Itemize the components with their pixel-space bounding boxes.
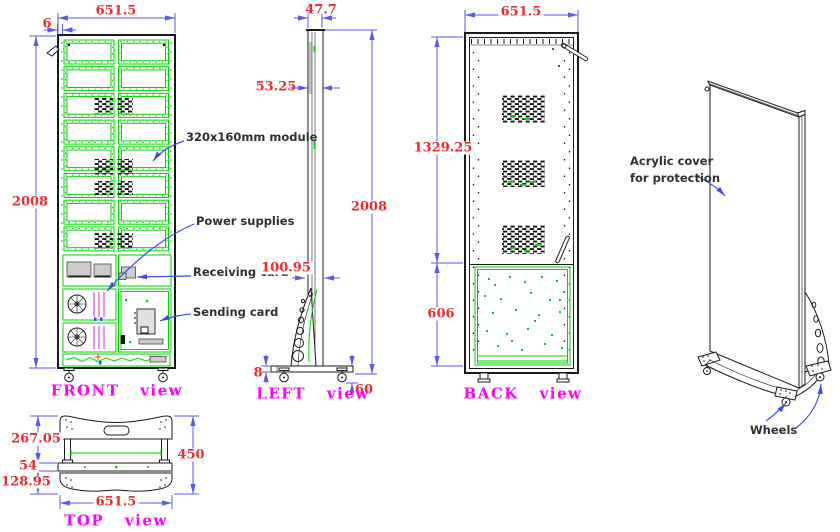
module-annotation: 320x160mm module xyxy=(186,131,317,145)
left-base-dim: 8 xyxy=(253,367,262,380)
left-thickness-dim: 53.25 xyxy=(256,81,297,94)
wheels-annotation: Wheels xyxy=(750,424,797,438)
sending-card-annotation: Sending card xyxy=(193,306,278,320)
acrylic-annotation-line2: for protection xyxy=(630,172,720,186)
technical-drawing-canvas: 651.5 6 2008 320x160mm module Power supp… xyxy=(0,0,840,532)
top-back-depth-dim: 128.95 xyxy=(0,476,53,489)
top-width-dim: 651.5 xyxy=(94,496,139,509)
iso-view-drawing xyxy=(696,81,831,428)
acrylic-annotation-line1: Acrylic cover xyxy=(630,155,713,169)
front-edge-dim: 6 xyxy=(42,18,51,31)
back-upper-dim: 1329.25 xyxy=(412,142,475,155)
front-view-label: FRONT view xyxy=(51,384,183,399)
back-view-label: BACK view xyxy=(464,387,583,402)
top-front-depth-dim: 267.05 xyxy=(9,433,63,446)
back-view-drawing xyxy=(431,10,586,382)
back-width-dim: 651.5 xyxy=(499,6,544,19)
top-bar-dim: 54 xyxy=(17,460,39,473)
left-view-label: LEFT view xyxy=(256,387,369,402)
drawing-linework xyxy=(0,0,840,532)
front-view-drawing xyxy=(29,13,194,382)
back-lower-dim: 606 xyxy=(425,308,456,321)
left-stand-dim: 100.95 xyxy=(259,262,313,275)
power-supplies-annotation: Power supplies xyxy=(196,215,294,229)
front-height-dim: 2008 xyxy=(10,196,50,209)
left-depth-dim: 47.7 xyxy=(305,4,337,17)
top-view-label: TOP view xyxy=(64,514,168,529)
front-width-dim: 651.5 xyxy=(94,5,139,18)
left-height-dim: 2008 xyxy=(349,201,389,214)
top-total-depth-dim: 450 xyxy=(175,449,206,462)
